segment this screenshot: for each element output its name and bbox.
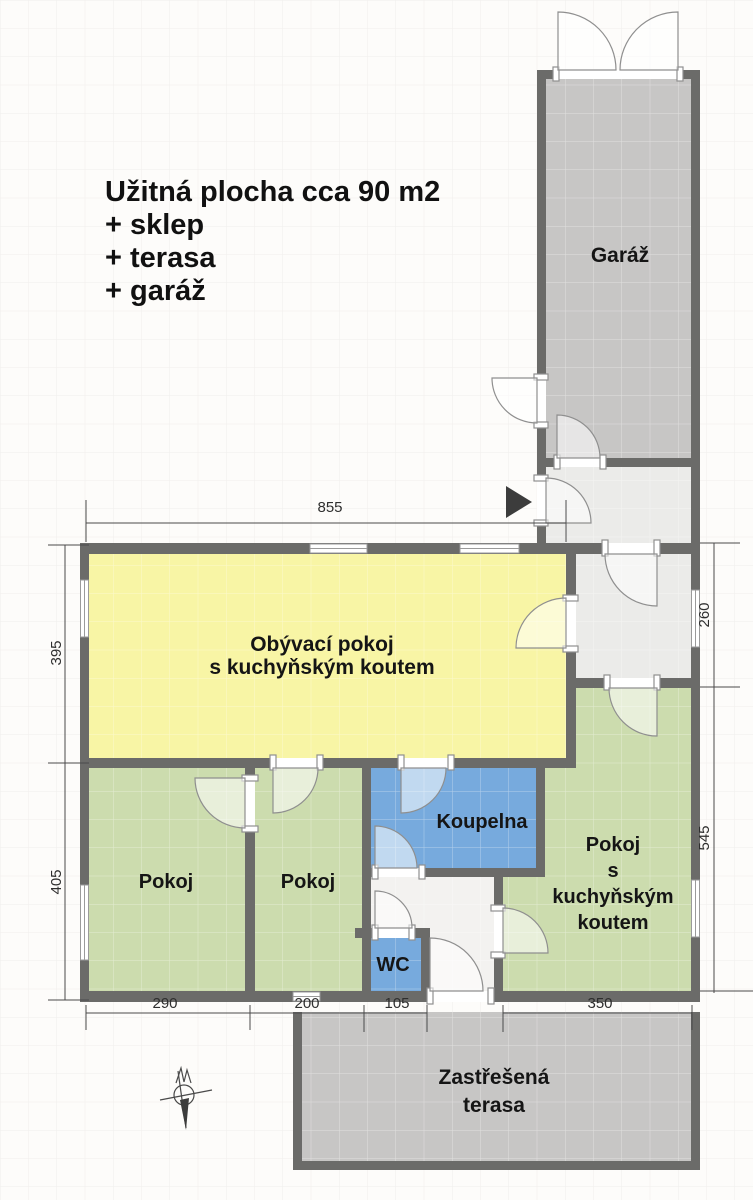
window-bedroom-left bbox=[81, 885, 89, 960]
room-garage bbox=[546, 79, 691, 458]
window-living-left bbox=[81, 580, 89, 637]
dimension-bottom-4: 350 bbox=[575, 996, 625, 1012]
living-room-label: Obývací pokoj s kuchyňským koutem bbox=[172, 633, 472, 679]
terrace-label: Zastřešená terasa bbox=[394, 1064, 594, 1120]
dimension-bottom-3: 105 bbox=[372, 996, 422, 1012]
bathroom-label: Koupelna bbox=[402, 810, 562, 834]
window-living-top-2 bbox=[460, 544, 519, 553]
info-line-cellar: + sklep bbox=[105, 209, 440, 242]
floor-plan: Užitná plocha cca 90 m2 + sklep + terasa… bbox=[0, 0, 753, 1200]
kitchenette-room-label-line4: koutem bbox=[538, 910, 688, 936]
bedroom-left-label: Pokoj bbox=[106, 870, 226, 894]
garage-label: Garáž bbox=[560, 244, 680, 268]
dimension-bedroom-height: 405 bbox=[49, 857, 65, 907]
window-kitchenette-right bbox=[692, 880, 700, 937]
terrace-label-line2: terasa bbox=[394, 1092, 594, 1120]
info-line-garage: + garáž bbox=[105, 275, 440, 308]
kitchenette-room-label-line2: s bbox=[538, 858, 688, 884]
dimension-living-height: 395 bbox=[49, 628, 65, 678]
living-room-label-line2: s kuchyňským koutem bbox=[172, 656, 472, 679]
dimension-kitchenette-height: 545 bbox=[697, 813, 713, 863]
kitchenette-room-label: Pokoj s kuchyňským koutem bbox=[538, 832, 688, 936]
info-line-terrace: + terasa bbox=[105, 242, 440, 275]
dimension-bottom-1: 290 bbox=[140, 996, 190, 1012]
wc-label: WC bbox=[353, 953, 433, 977]
bedroom-middle-label: Pokoj bbox=[248, 870, 368, 894]
window-living-top-1 bbox=[310, 544, 367, 553]
dimension-top-width: 855 bbox=[305, 500, 355, 516]
info-text-block: Užitná plocha cca 90 m2 + sklep + terasa… bbox=[105, 176, 440, 308]
living-room-label-line1: Obývací pokoj bbox=[172, 633, 472, 656]
dimension-bottom-2: 200 bbox=[282, 996, 332, 1012]
kitchenette-room-label-line3: kuchyňským bbox=[538, 884, 688, 910]
kitchenette-room-label-line1: Pokoj bbox=[538, 832, 688, 858]
info-line-area: Užitná plocha cca 90 m2 bbox=[105, 176, 440, 209]
dimension-hall-height: 260 bbox=[697, 590, 713, 640]
terrace-label-line1: Zastřešená bbox=[394, 1064, 594, 1092]
